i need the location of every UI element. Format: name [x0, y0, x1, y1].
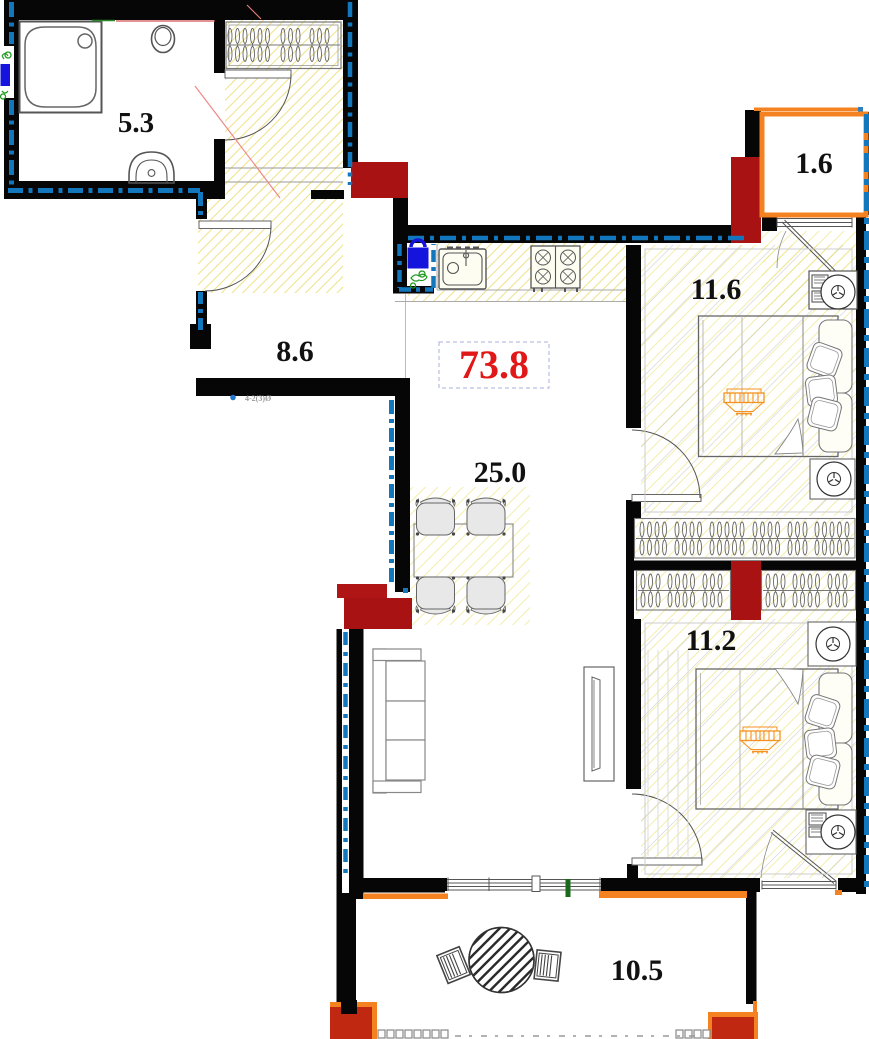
svg-text:5.3: 5.3 [118, 107, 154, 139]
svg-text:1.6: 1.6 [795, 147, 833, 180]
svg-text:8.6: 8.6 [276, 335, 314, 368]
svg-text:10.5: 10.5 [611, 954, 664, 987]
svg-text:25.0: 25.0 [474, 456, 527, 489]
svg-text:73.8: 73.8 [459, 342, 529, 387]
svg-text:4-2(3)Ø: 4-2(3)Ø [245, 394, 271, 403]
svg-text:11.2: 11.2 [686, 624, 737, 657]
svg-text:11.6: 11.6 [691, 273, 742, 306]
